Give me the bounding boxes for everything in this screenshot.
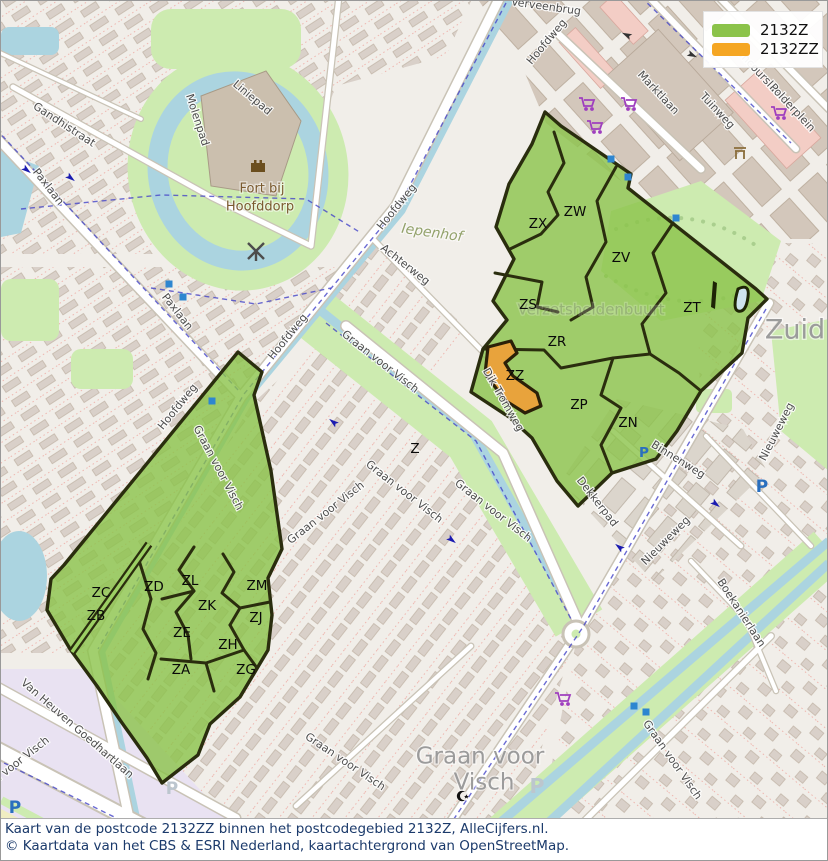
area-label-ZN: ZN [618, 415, 637, 431]
place-label: Verzetsheldenbuurt [517, 301, 664, 319]
map-sliver [735, 287, 748, 311]
area-label-ZV: ZV [612, 250, 631, 266]
parking-icon-faint [166, 779, 178, 799]
area-label-ZT: ZT [683, 300, 701, 316]
area-label-ZC: ZC [92, 585, 111, 601]
caption: Kaart van de postcode 2132ZZ binnen het … [1, 818, 828, 861]
area-label-ZJ: ZJ [249, 610, 262, 626]
place-label: Hoofddorp [226, 200, 294, 215]
parking-icon [9, 798, 21, 818]
transit-stop-icon [673, 215, 680, 222]
transit-stop-icon [625, 174, 632, 181]
transit-stop-icon [631, 703, 638, 710]
area-label-ZR: ZR [548, 334, 567, 350]
postcode-map-figure: P P [0, 0, 828, 861]
area-label-ZP: ZP [570, 397, 587, 413]
parking-icon [756, 477, 768, 497]
place-label: Zuid [765, 315, 825, 346]
parking-icon-faint [530, 774, 545, 798]
area-label-ZE: ZE [173, 625, 191, 641]
legend-swatch [712, 24, 750, 37]
area-label-ZH: ZH [218, 637, 237, 653]
area-label-ZS: ZS [519, 297, 537, 313]
transit-stop-icon [180, 294, 187, 301]
legend-label: 2132ZZ [760, 41, 819, 57]
transit-stop-icon [209, 398, 216, 405]
area-label-ZB: ZB [87, 608, 106, 624]
place-label: Fort bij [239, 182, 284, 197]
caption-line-2: © Kaartdata van het CBS & ESRI Nederland… [5, 838, 828, 855]
area-label-ZL: ZL [182, 573, 199, 589]
area-label-ZM: ZM [247, 578, 268, 594]
area-label-ZK: ZK [198, 598, 217, 614]
legend-item-2132Z: 2132Z [712, 22, 814, 38]
place-label: Graan voor [416, 744, 545, 770]
area-label-ZD: ZD [144, 579, 164, 595]
area-label-ZZ: ZZ [506, 368, 525, 384]
area-label-Z: Z [410, 441, 419, 457]
area-label-ZW: ZW [564, 204, 587, 220]
legend-label: 2132Z [760, 22, 808, 38]
transit-stop-icon [608, 156, 615, 163]
area-label-ZG: ZG [236, 662, 256, 678]
transit-stop-icon [166, 281, 173, 288]
transit-stop-icon [643, 709, 650, 716]
legend: 2132Z2132ZZ [703, 11, 823, 68]
legend-item-2132ZZ: 2132ZZ [712, 41, 814, 57]
caption-line-1: Kaart van de postcode 2132ZZ binnen het … [5, 821, 828, 838]
place-label: Visch [454, 770, 515, 796]
area-label-ZA: ZA [172, 662, 191, 678]
map-canvas[interactable]: P P [1, 1, 828, 818]
parking-icon [639, 445, 649, 461]
legend-swatch [712, 43, 750, 56]
area-label-ZX: ZX [529, 216, 548, 232]
